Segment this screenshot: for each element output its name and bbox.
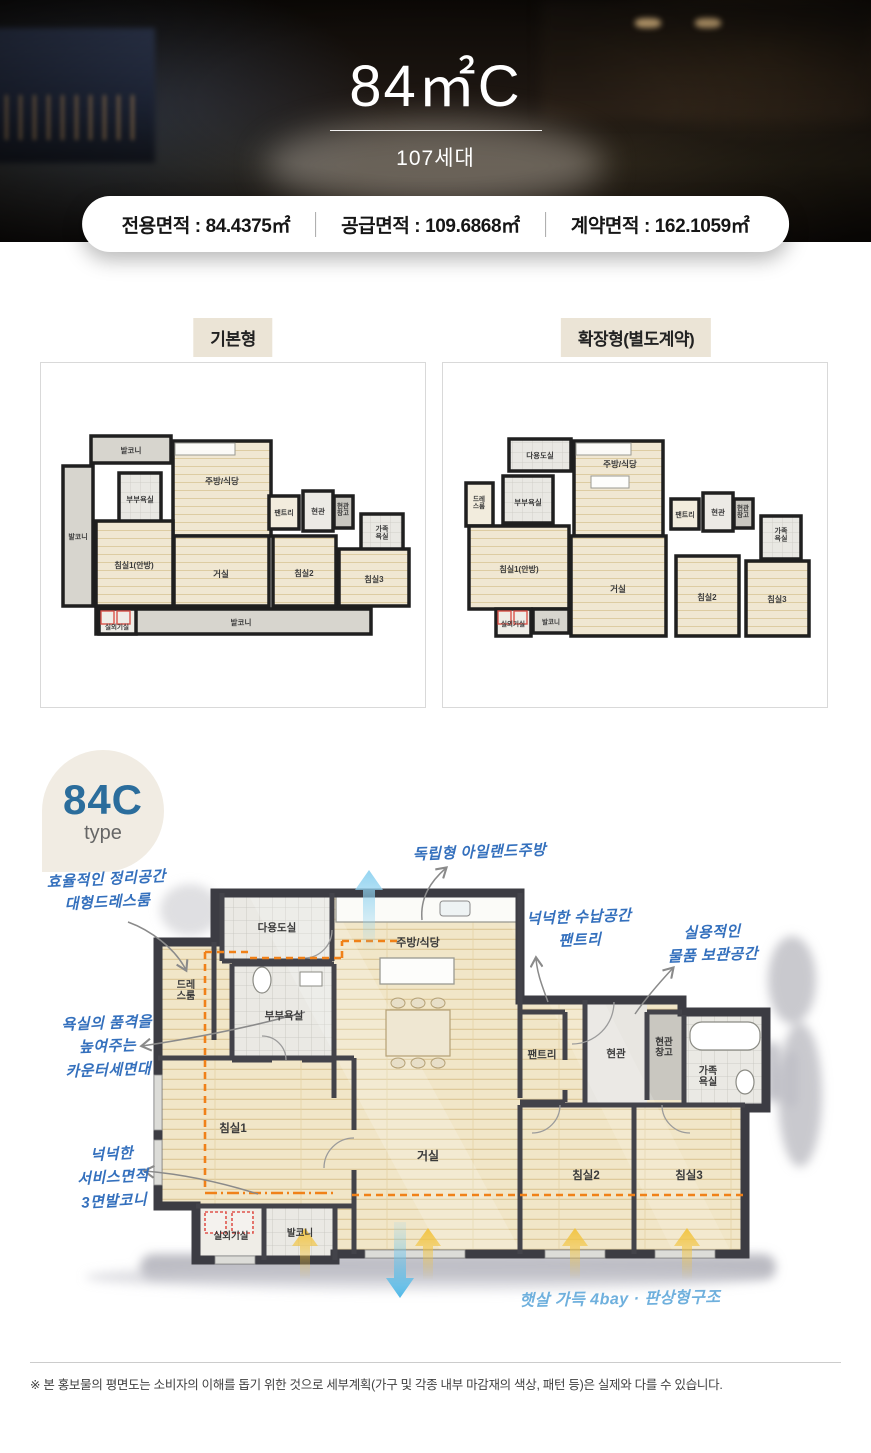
room-label-bedroom1: 침실1 bbox=[219, 1121, 247, 1135]
extended-floor-plan-image: 다용도실 주방/식당 드레스룸 부부욕실 침실1(안방) 거실 팬트리 현관 현… bbox=[443, 363, 827, 707]
room-label-living: 거실 bbox=[213, 569, 229, 579]
room-label-family-bath: 가족욕실 bbox=[775, 526, 788, 543]
room-label-bedroom2: 침실2 bbox=[697, 592, 717, 602]
room-label-dress-room: 드레스룸 bbox=[473, 494, 485, 510]
room-label-bedroom3: 침실3 bbox=[675, 1168, 703, 1182]
hero-text: 84㎡C 107세대 bbox=[0, 0, 871, 172]
room-label-bedroom1: 침실1(안방) bbox=[499, 564, 539, 574]
room-label-master-bath: 부부욕실 bbox=[126, 494, 154, 504]
supply-area: 공급면적 : 109.6868㎡ bbox=[341, 211, 520, 238]
room-label-entrance: 현관 bbox=[606, 1047, 626, 1060]
extended-plan-label: 확장형(별도계약) bbox=[561, 318, 711, 357]
room-label-bedroom2: 침실2 bbox=[572, 1168, 600, 1182]
room-label-utility: 다용도실 bbox=[526, 450, 554, 460]
room-label-bedroom3: 침실3 bbox=[364, 574, 384, 584]
room-label-outdoor-unit: 실외기실 bbox=[105, 622, 129, 631]
room-label-balcony-left: 발코니 bbox=[68, 532, 87, 541]
annotation-storage: 실용적인 물품 보관공간 bbox=[649, 919, 776, 970]
room-label-outdoor-unit: 실외기실 bbox=[501, 619, 525, 628]
room-label-living: 거실 bbox=[610, 584, 626, 594]
unit-type-title: 84㎡C bbox=[0, 58, 871, 116]
room-label-balcony: 발코니 bbox=[287, 1227, 313, 1239]
annotation-balcony: 넉넉한 서비스면적 3면발코니 bbox=[46, 1140, 179, 1216]
contract-area: 계약면적 : 162.1059㎡ bbox=[571, 211, 750, 238]
extended-floor-plan-card: 다용도실 주방/식당 드레스룸 부부욕실 침실1(안방) 거실 팬트리 현관 현… bbox=[442, 362, 828, 708]
room-label-balcony-top: 발코니 bbox=[121, 445, 142, 455]
title-divider bbox=[330, 130, 542, 131]
room-label-kitchen: 주방/식당 bbox=[396, 935, 440, 949]
room-label-kitchen: 주방/식당 bbox=[205, 476, 239, 486]
room-label-entrance-storage: 현관창고 bbox=[337, 501, 349, 517]
room-label-bedroom3: 침실3 bbox=[767, 594, 787, 604]
room-label-family-bath: 가족욕실 bbox=[376, 524, 389, 541]
room-label-entrance-storage: 현관창고 bbox=[655, 1036, 673, 1058]
room-label-bedroom2: 침실2 bbox=[294, 568, 314, 578]
room-label-master-bath: 부부욕실 bbox=[265, 1009, 304, 1022]
room-label-bedroom1: 침실1(안방) bbox=[114, 560, 154, 570]
basic-plan-label: 기본형 bbox=[193, 318, 272, 357]
area-banner: 전용면적 : 84.4375㎡ 공급면적 : 109.6868㎡ 계약면적 : … bbox=[82, 196, 790, 252]
room-label-entrance-storage: 현관창고 bbox=[737, 503, 749, 519]
room-label-balcony-bottom: 발코니 bbox=[231, 617, 252, 627]
type-badge-title: 84C bbox=[63, 779, 143, 821]
separator bbox=[315, 212, 316, 237]
page: 84㎡C 107세대 전용면적 : 84.4375㎡ 공급면적 : 109.68… bbox=[0, 0, 871, 1453]
type-badge: 84C type bbox=[42, 750, 164, 872]
basic-floor-plan-card: 발코니 주방/식당 부부욕실 발코니 침실1(안방) 거실 팬트리 현관 현관창… bbox=[40, 362, 426, 708]
room-label-outdoor-unit: 실외기실 bbox=[214, 1230, 249, 1242]
type-badge-subtitle: type bbox=[84, 823, 122, 843]
annotation-sunlight: 햇살 가득 4bay · 판상형구조 bbox=[470, 1285, 770, 1315]
room-label-balcony: 발코니 bbox=[542, 617, 560, 626]
disclaimer: ※ 본 홍보물의 평면도는 소비자의 이해를 돕기 위한 것으로 세부계획(가구… bbox=[30, 1362, 841, 1393]
room-label-pantry: 팬트리 bbox=[274, 508, 293, 517]
room-label-utility: 다용도실 bbox=[258, 921, 297, 934]
room-label-pantry: 팬트리 bbox=[528, 1048, 557, 1061]
room-label-dress-room: 드레스룸 bbox=[177, 978, 195, 1002]
room-label-entrance: 현관 bbox=[711, 507, 725, 517]
room-label-master-bath: 부부욕실 bbox=[514, 497, 542, 507]
separator bbox=[545, 212, 546, 237]
unit-count: 107세대 bbox=[0, 142, 871, 172]
room-label-living: 거실 bbox=[417, 1148, 439, 1163]
room-label-kitchen: 주방/식당 bbox=[603, 459, 637, 469]
annotation-pantry: 넉넉한 수납공간 팬트리 bbox=[511, 904, 648, 955]
room-label-pantry: 팬트리 bbox=[675, 510, 694, 519]
room-label-entrance: 현관 bbox=[311, 506, 325, 516]
annotation-dress-room: 효율적인 정리공간 대형드레스룸 bbox=[27, 864, 187, 919]
exclusive-area: 전용면적 : 84.4375㎡ bbox=[122, 211, 291, 238]
annotation-counter-basin: 욕실의 품격을 높여주는 카운터세면대 bbox=[29, 1009, 186, 1084]
basic-floor-plan-image: 발코니 주방/식당 부부욕실 발코니 침실1(안방) 거실 팬트리 현관 현관창… bbox=[41, 363, 425, 707]
room-label-family-bath: 가족욕실 bbox=[699, 1064, 717, 1088]
